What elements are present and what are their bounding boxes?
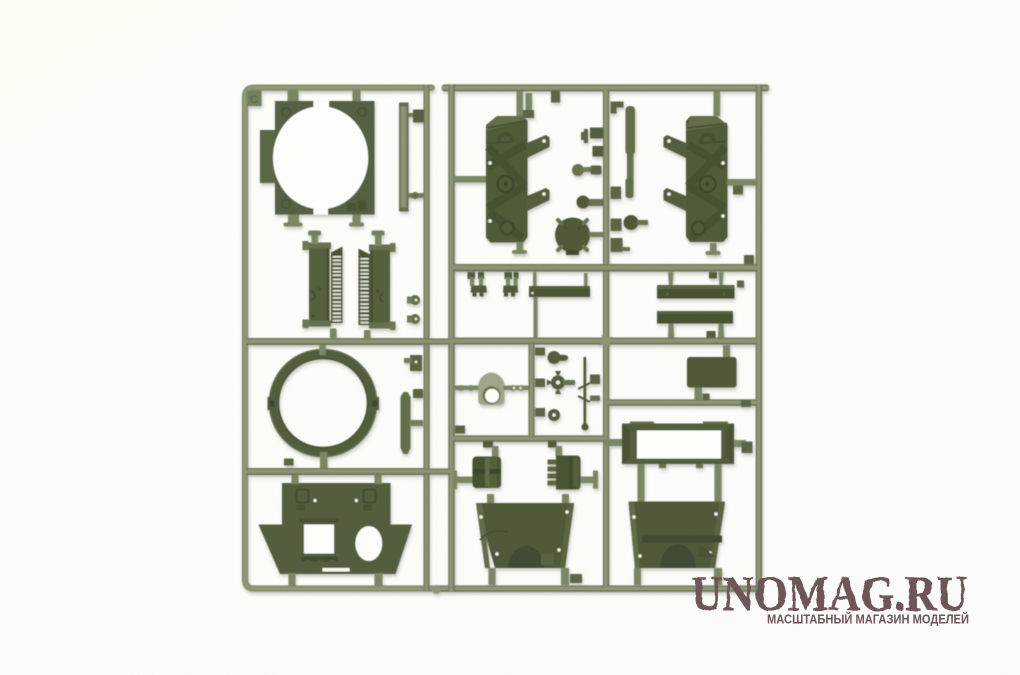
svg-text:МАСШТАБНЫЙ МАГАЗИН МОДЕЛЕЙ: МАСШТАБНЫЙ МАГАЗИН МОДЕЛЕЙ bbox=[767, 612, 969, 627]
